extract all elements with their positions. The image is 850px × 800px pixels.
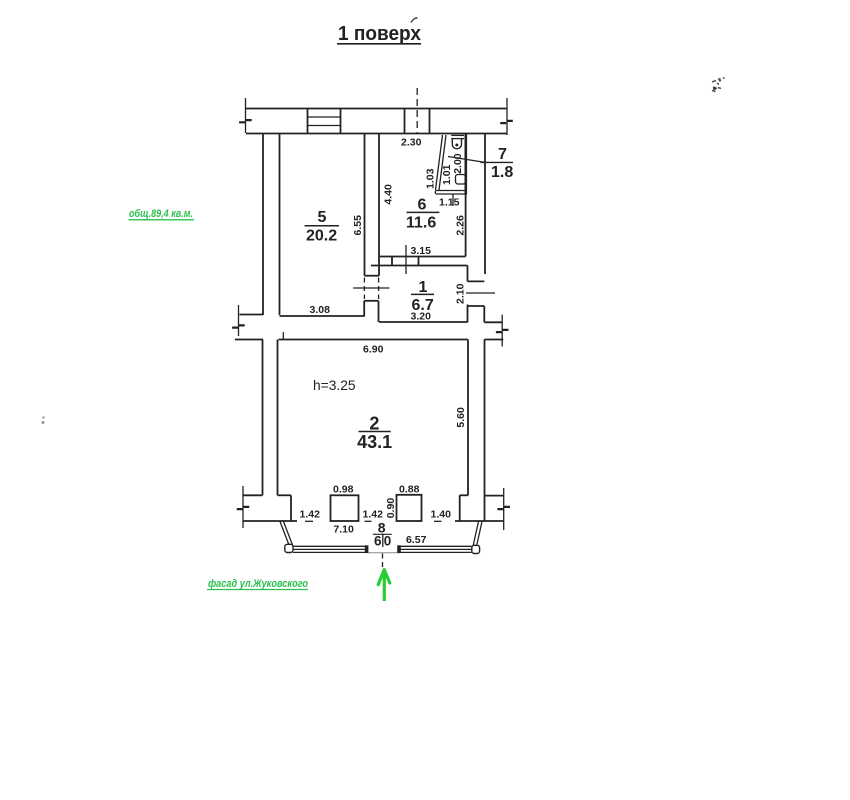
svg-text:5.60: 5.60 [455,407,467,428]
svg-text:11.6: 11.6 [406,215,436,232]
svg-text:2: 2 [369,413,379,433]
svg-text:1: 1 [419,279,428,296]
svg-text:3.08: 3.08 [310,304,331,316]
svg-text:1 поверх: 1 поверх [338,23,421,45]
svg-text:1.8: 1.8 [491,164,513,181]
svg-text:1.42: 1.42 [300,509,321,521]
svg-text:0: 0 [384,533,392,548]
svg-text:2.26: 2.26 [454,215,466,236]
svg-text:7: 7 [498,146,507,163]
svg-text:0.88: 0.88 [399,484,420,496]
svg-text:2.30: 2.30 [401,137,422,149]
svg-text:2.10: 2.10 [455,283,467,304]
svg-text:6.57: 6.57 [406,534,427,546]
svg-text:общ.89,4 кв.м.: общ.89,4 кв.м. [129,208,193,220]
svg-text:1.15: 1.15 [439,197,460,209]
svg-text:0.98: 0.98 [333,484,354,496]
svg-text:1.42: 1.42 [363,509,384,521]
svg-text:3.15: 3.15 [411,245,432,257]
svg-text:фасад ул.Жуковского: фасад ул.Жуковского [208,578,308,590]
svg-text:h=3.25: h=3.25 [313,378,356,393]
svg-text:6.90: 6.90 [363,344,384,356]
svg-text:0.90: 0.90 [385,498,397,519]
svg-text:43.1: 43.1 [357,432,392,452]
svg-text:1.03: 1.03 [425,168,437,189]
svg-text:6: 6 [374,533,382,548]
svg-text:3.20: 3.20 [411,311,432,323]
svg-text:20.2: 20.2 [306,228,337,245]
svg-text:2.00: 2.00 [452,153,464,174]
svg-text:1.40: 1.40 [431,509,452,521]
svg-text:4.40: 4.40 [383,184,395,205]
svg-text:6.55: 6.55 [352,215,364,236]
svg-text:7.10: 7.10 [333,524,354,536]
svg-text:5: 5 [318,209,327,226]
svg-text:6: 6 [418,197,427,214]
